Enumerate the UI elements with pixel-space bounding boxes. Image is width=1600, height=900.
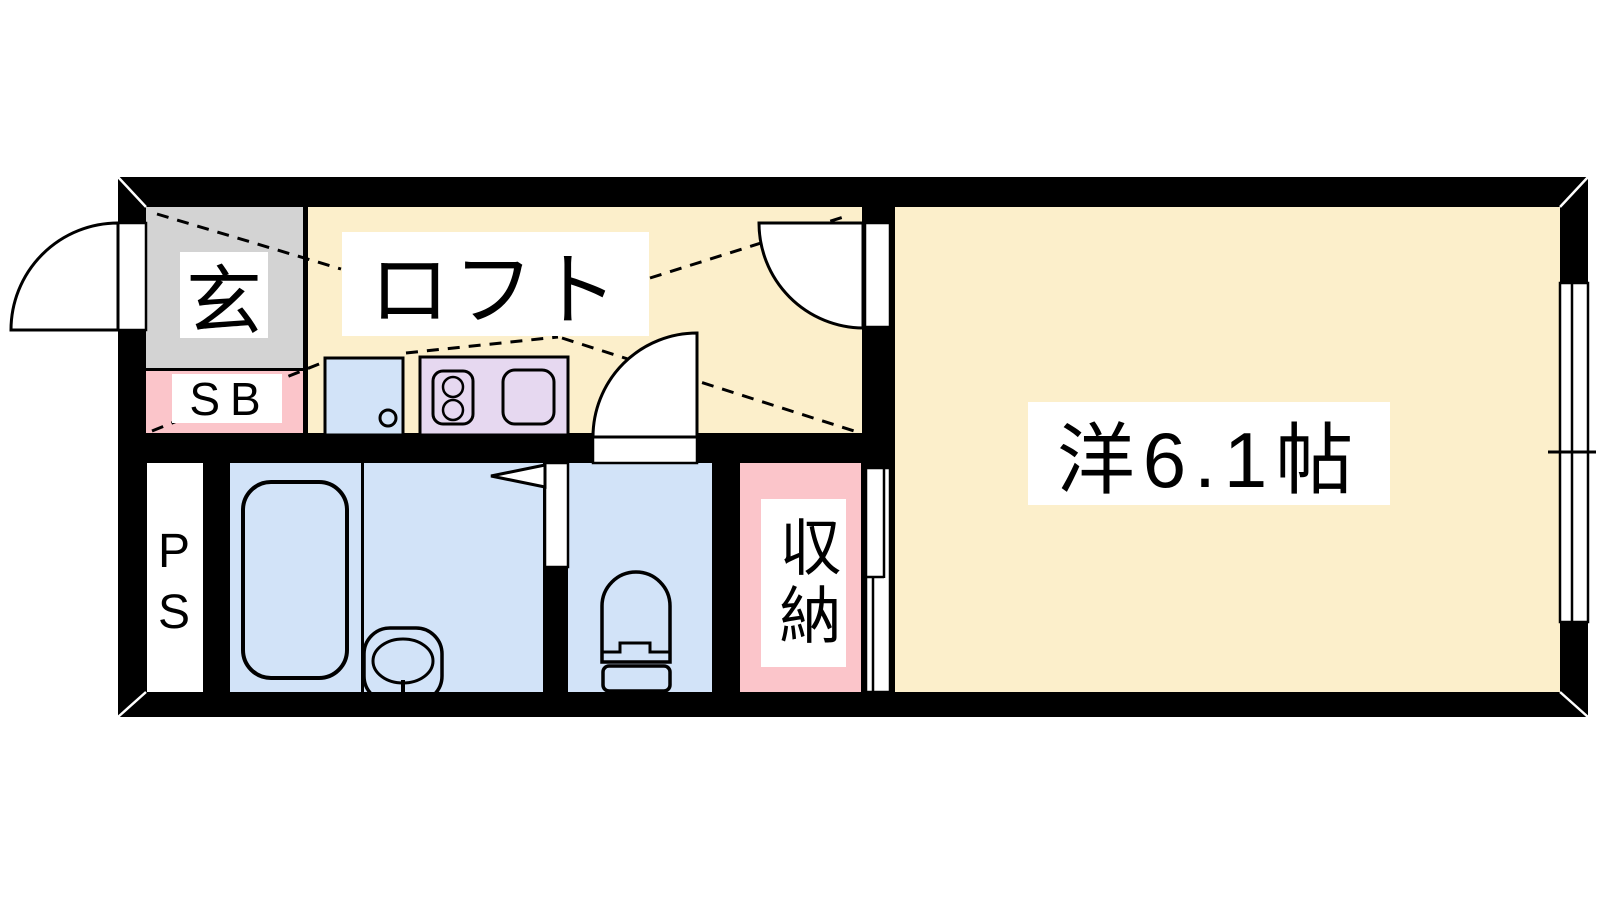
washing-machine-pan <box>325 358 403 435</box>
toilet-tank <box>603 666 670 691</box>
kitchen-counter <box>420 357 568 435</box>
loft-label: ロフト <box>342 232 649 336</box>
room-door-opening <box>865 223 890 327</box>
toilet-door-opening <box>545 463 568 567</box>
pipe-space-label: PS <box>150 528 198 644</box>
washing-machine-space <box>325 358 403 435</box>
entry-door-opening <box>118 223 146 330</box>
shoe-box-label: SB <box>172 374 282 423</box>
toilet-room-floor <box>568 463 712 692</box>
storage-label: 収納 <box>761 499 846 667</box>
floor-plan: 玄 SB ロフト 洋6.1帖 収納 PS <box>0 0 1600 900</box>
western-room-label: 洋6.1帖 <box>1028 402 1390 505</box>
genkan-partition-wall <box>303 207 308 433</box>
bathroom-floor <box>230 463 543 692</box>
closet-sliding-door-icon <box>866 468 890 692</box>
entry-door-swing-icon <box>11 223 118 330</box>
closet-door-frame <box>866 468 890 692</box>
genkan-label: 玄 <box>180 252 268 338</box>
